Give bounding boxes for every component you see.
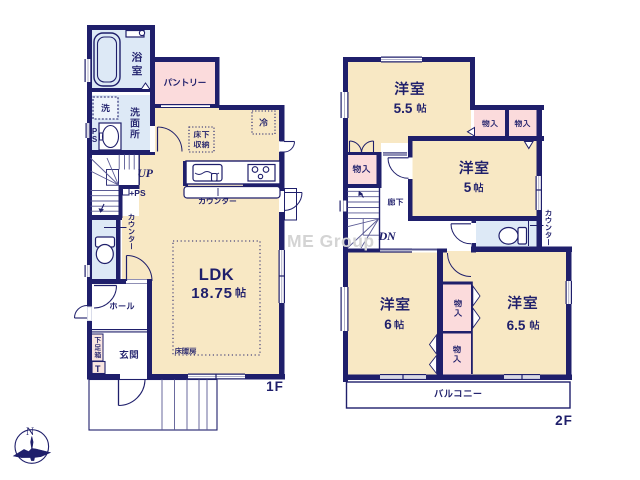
svg-text:UP: UP — [137, 166, 153, 180]
svg-text:5.5: 5.5 — [394, 101, 413, 116]
svg-text:5: 5 — [464, 180, 472, 195]
svg-text:DN: DN — [378, 229, 397, 243]
svg-text:T: T — [95, 364, 101, 374]
svg-text:2F: 2F — [555, 413, 573, 428]
svg-text:6: 6 — [384, 317, 392, 332]
svg-text:ME Group: ME Group — [287, 231, 375, 251]
svg-text:6.5: 6.5 — [507, 318, 526, 333]
svg-text:1F: 1F — [266, 379, 284, 394]
svg-text:+PS: +PS — [129, 188, 146, 198]
svg-text:18.75: 18.75 — [191, 285, 233, 302]
svg-text:N: N — [26, 426, 35, 438]
svg-text:S: S — [92, 135, 98, 144]
svg-text:LDK: LDK — [199, 266, 234, 284]
